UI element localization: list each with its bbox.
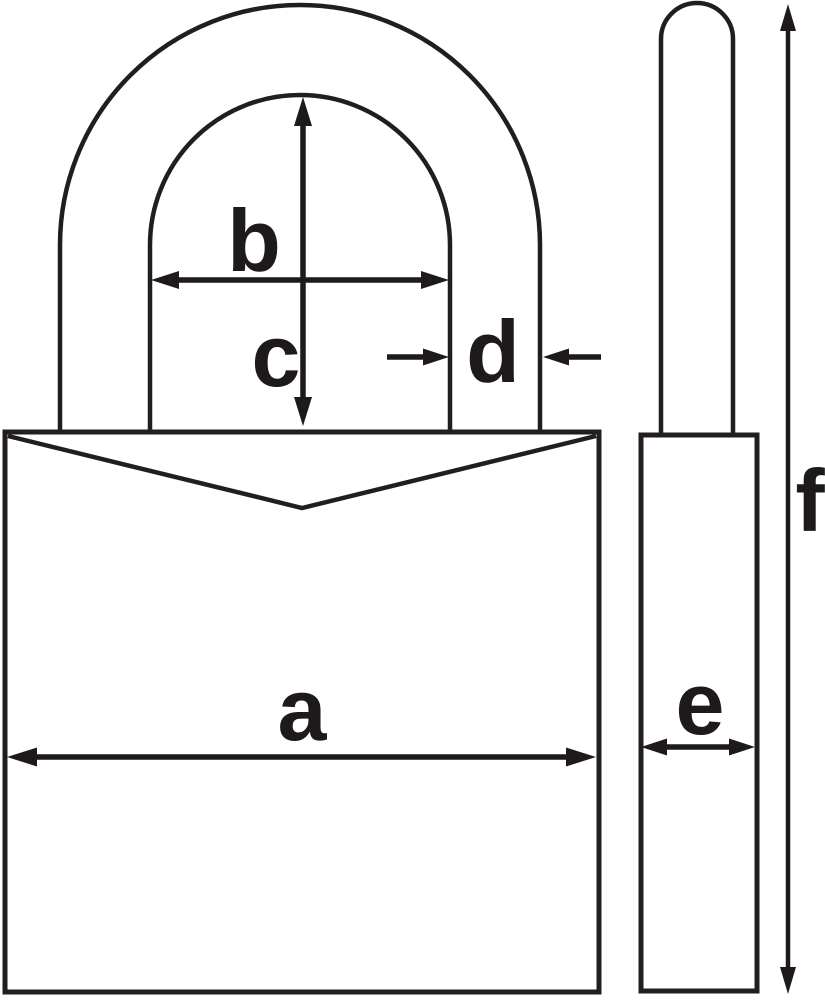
dimension-a-arrowhead-right (566, 748, 596, 767)
padlock-side-view (641, 3, 757, 991)
dimension-c-arrowhead-top (294, 97, 312, 126)
dimension-f-label: f (795, 451, 825, 550)
dimension-e-arrowhead-left (641, 739, 667, 756)
dimension-d: d (387, 302, 601, 401)
front-body-chamfer-notch (8, 436, 596, 508)
dimension-a-arrowhead-left (7, 748, 37, 767)
dimension-d-arrowhead-right (543, 349, 569, 366)
dimension-b-arrowhead-left (151, 271, 179, 289)
dimension-c-label: c (252, 306, 301, 405)
dimension-f: f (780, 4, 825, 994)
dimension-f-arrowhead-bottom (780, 967, 796, 994)
dimension-d-arrowhead-left (423, 349, 449, 366)
dimension-a-label: a (278, 660, 328, 759)
side-shackle-outline (661, 3, 733, 436)
dimension-a: a (7, 660, 596, 767)
padlock-dimension-diagram: a b c d (0, 0, 825, 1000)
dimension-b-label: b (227, 191, 281, 290)
dimension-d-label: d (466, 302, 520, 401)
diagram-canvas: a b c d (0, 0, 825, 1000)
dimension-e-arrowhead-right (729, 739, 755, 756)
dimension-b-arrowhead-right (421, 271, 449, 289)
dimension-b: b (151, 191, 449, 290)
dimension-e-label: e (676, 654, 725, 753)
dimension-e: e (641, 654, 755, 756)
dimension-f-arrowhead-top (780, 4, 796, 31)
